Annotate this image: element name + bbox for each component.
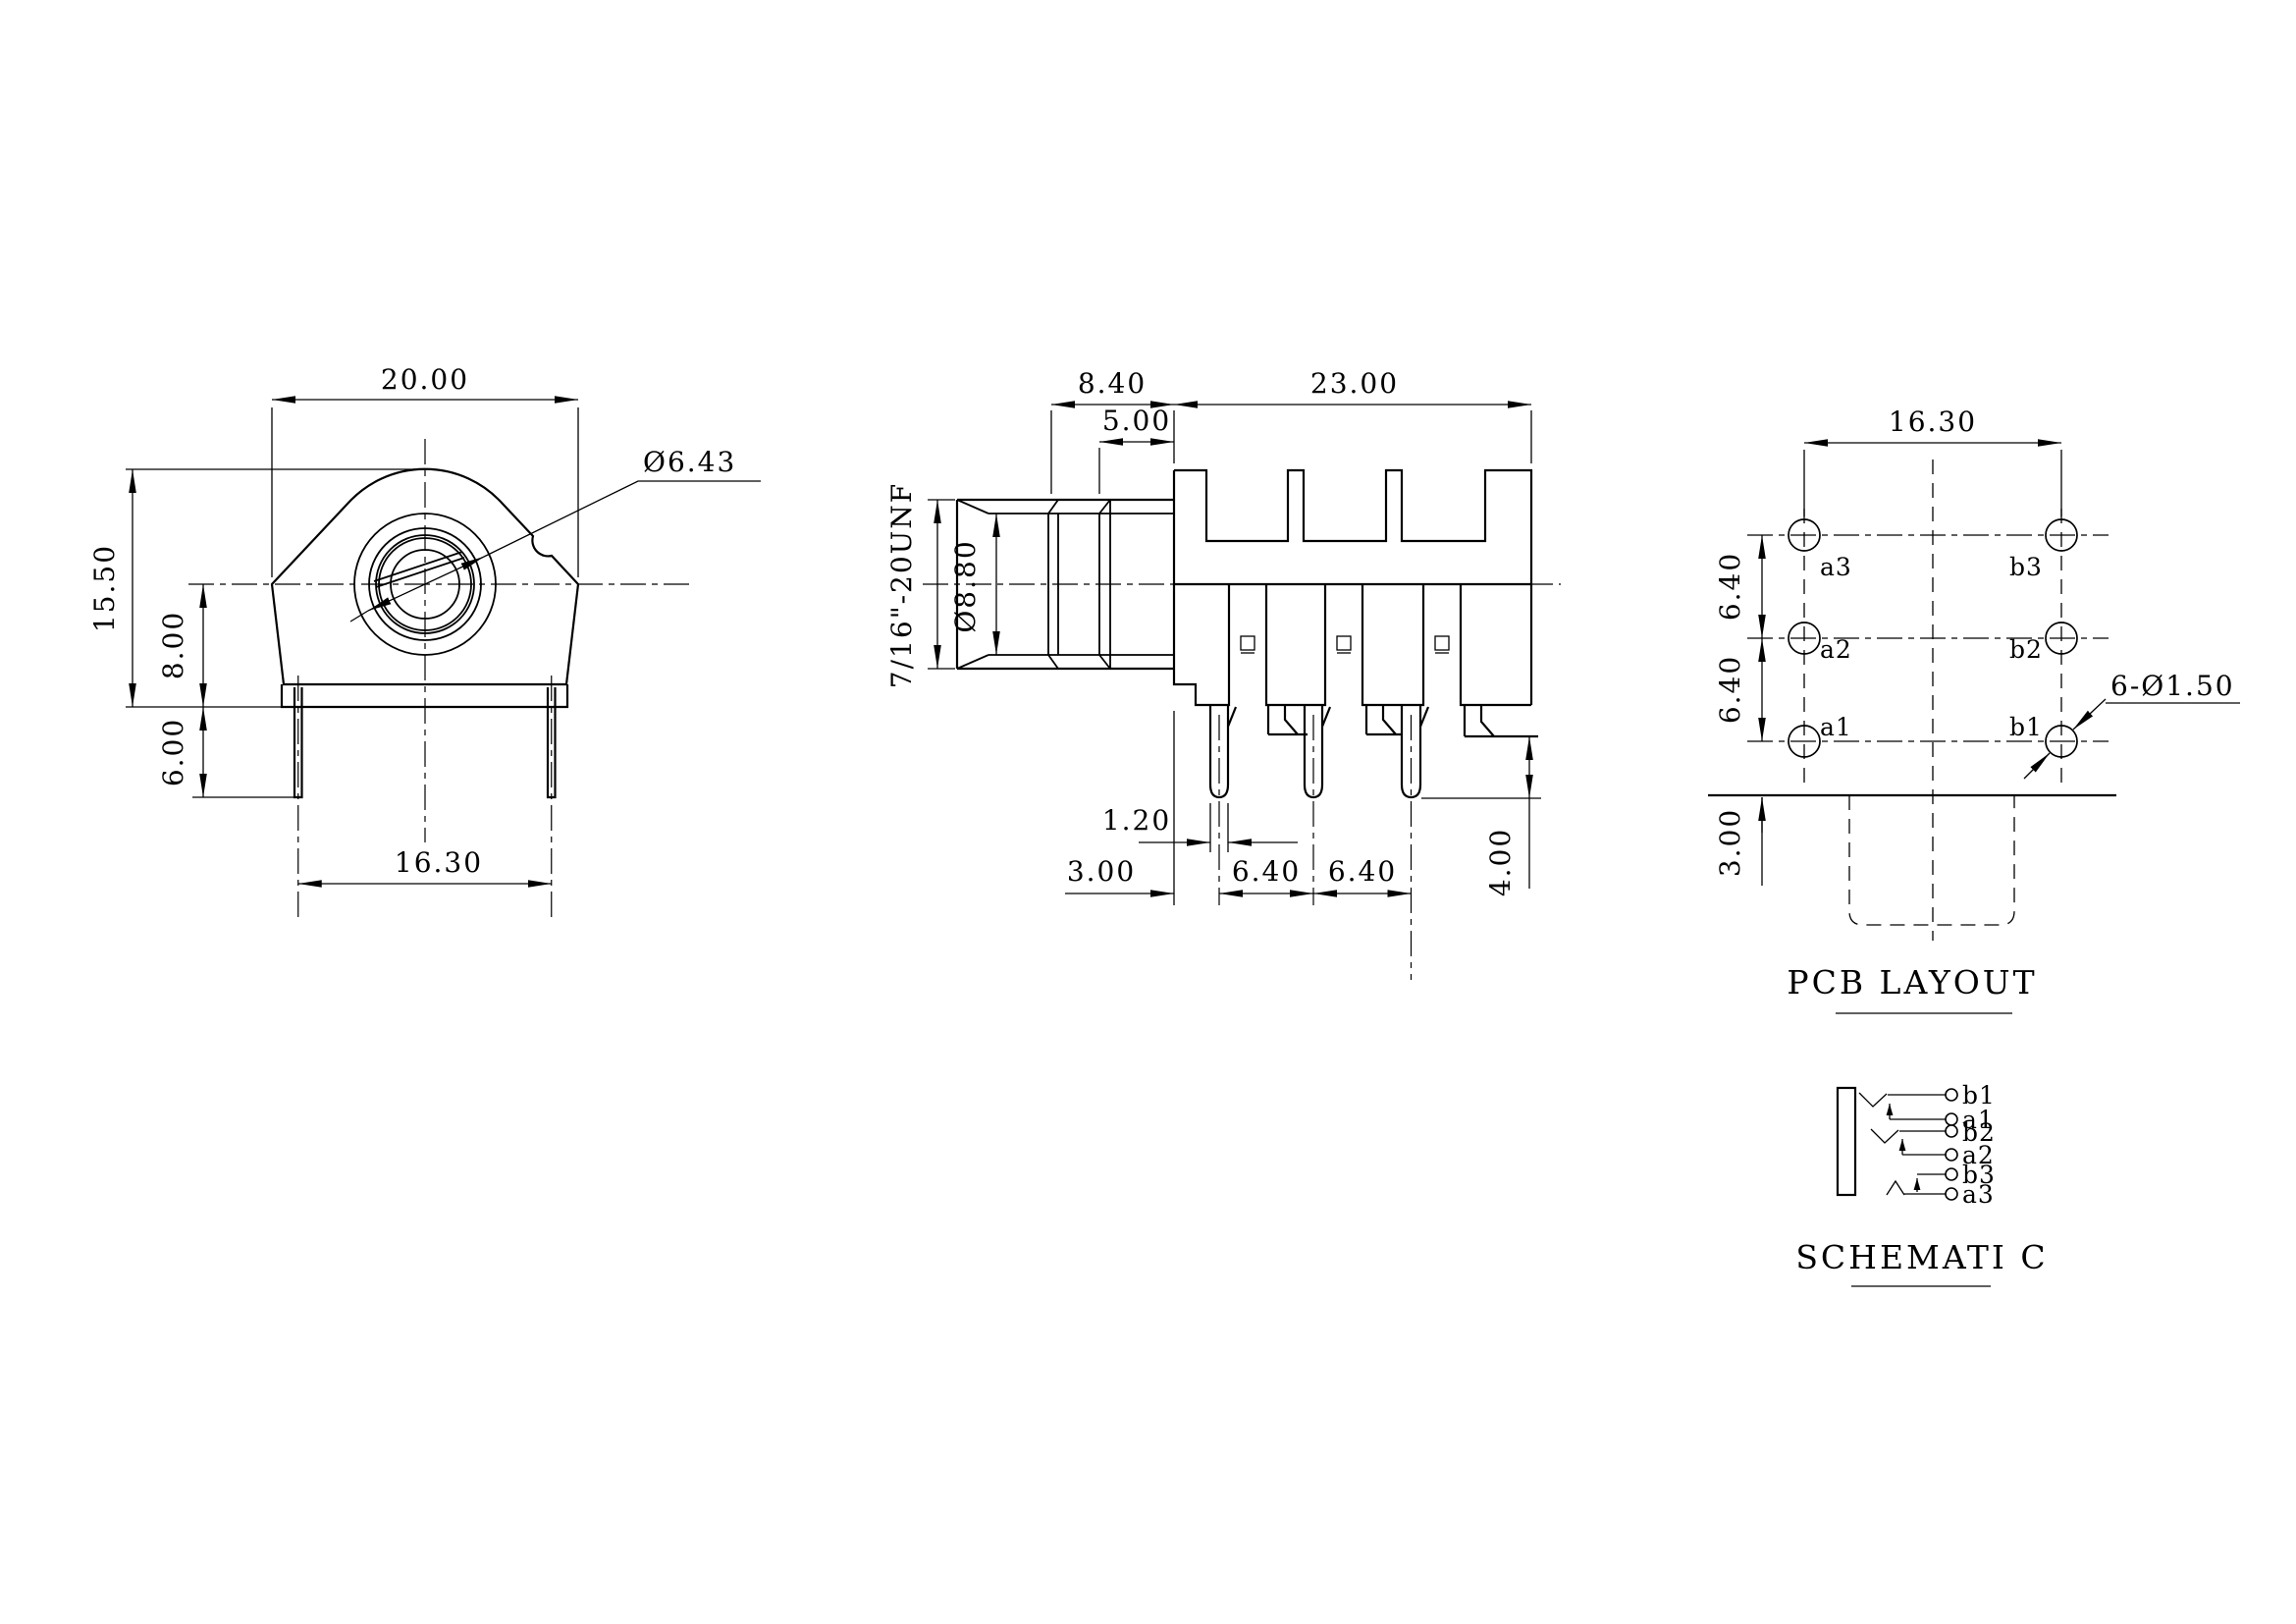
pcb-layout-title: PCB LAYOUT xyxy=(1787,963,2037,1001)
dim-label-side-pin-below: 4.00 xyxy=(1484,828,1517,896)
dim-label-side-pin-width: 1.20 xyxy=(1102,804,1171,837)
pcb-jack-body-outline xyxy=(1849,795,2014,925)
dim-front-pin-length: 6.00 xyxy=(157,707,297,797)
pcb-layout-caption: PCB LAYOUT xyxy=(1787,963,2037,1013)
dim-label-front-height: 15.50 xyxy=(88,544,121,632)
dim-front-bore: Ø6.43 xyxy=(350,446,761,622)
dim-label-pcb-edge: 3.00 xyxy=(1714,808,1746,877)
dim-side-pin-width: 1.20 xyxy=(1102,803,1298,852)
dim-label-side-neck: 5.00 xyxy=(1102,405,1171,437)
side-windows xyxy=(1241,636,1449,653)
dim-label-side-body-length: 23.00 xyxy=(1310,367,1399,400)
dim-pcb-row-pitches: 6.40 6.40 3.00 xyxy=(1714,535,1762,886)
terminal-label-a3: a3 xyxy=(1962,1180,1995,1209)
pcb-layout-view: a3 b3 a2 b2 a1 b1 16.30 6.40 6.40 3.00 xyxy=(1708,406,2240,1013)
dim-label-side-thread-length: 8.40 xyxy=(1078,367,1147,400)
dim-front-center-height: 8.00 xyxy=(157,584,203,707)
dim-label-side-bushing-bore: Ø8.80 xyxy=(949,539,982,632)
pad-label-b1: b1 xyxy=(2009,713,2043,741)
side-body-outline xyxy=(1174,470,1531,705)
pad-label-a3: a3 xyxy=(1820,553,1852,581)
schematic-jack-barrel xyxy=(1838,1088,1855,1195)
engineering-drawing-canvas: 20.00 15.50 8.00 6.00 16.30 Ø6.43 xyxy=(0,0,2296,1624)
side-contact-blocks xyxy=(1266,584,1531,705)
dim-label-side-pitch-1: 6.40 xyxy=(1232,855,1301,888)
schematic-title: SCHEMATI C xyxy=(1795,1238,2048,1276)
side-view: 8.40 23.00 5.00 7/16"-20UNF Ø8.80 1.2 xyxy=(885,367,1561,980)
dim-label-pcb-pitch-1: 6.40 xyxy=(1714,552,1746,621)
dim-pcb-holes-note: 6-Ø1.50 xyxy=(2024,670,2240,779)
dim-side-neck: 5.00 xyxy=(1099,405,1174,494)
pad-label-b2: b2 xyxy=(2009,635,2043,664)
dim-side-thread-spec: 7/16"-20UNF xyxy=(885,482,955,688)
drawing-sheet: 20.00 15.50 8.00 6.00 16.30 Ø6.43 xyxy=(0,0,2296,1624)
dim-front-height: 15.50 xyxy=(88,469,425,707)
front-view: 20.00 15.50 8.00 6.00 16.30 Ø6.43 xyxy=(88,363,761,921)
dim-label-front-width: 20.00 xyxy=(381,363,469,396)
dim-front-pin-span: 16.30 xyxy=(298,846,552,884)
pad-label-b3: b3 xyxy=(2009,553,2043,581)
dim-label-side-pitch-2: 6.40 xyxy=(1328,855,1397,888)
dim-side-pin-below: 4.00 xyxy=(1421,736,1541,896)
dim-label-pcb-pitch-2: 6.40 xyxy=(1714,655,1746,724)
schematic-terminals: b1 a1 b2 a2 b3 a3 xyxy=(1946,1081,1996,1209)
schematic-caption: SCHEMATI C xyxy=(1795,1238,2048,1286)
dim-label-pcb-holes-note: 6-Ø1.50 xyxy=(2110,670,2235,702)
pad-label-a1: a1 xyxy=(1820,713,1852,741)
dim-label-side-face-to-pin: 3.00 xyxy=(1067,855,1136,888)
schematic-view: b1 a1 b2 a2 b3 a3 SCHEMATI C xyxy=(1795,1081,2048,1286)
dim-label-pcb-col-span: 16.30 xyxy=(1889,406,1977,438)
dim-label-front-center-height: 8.00 xyxy=(157,611,189,679)
schematic-wiring xyxy=(1859,1093,1946,1195)
dim-label-front-pin-length: 6.00 xyxy=(157,718,189,786)
dim-label-front-pin-span: 16.30 xyxy=(395,846,483,879)
dim-side-body-length: 23.00 xyxy=(1174,367,1531,405)
pcb-pad-labels: a3 b3 a2 b2 a1 b1 xyxy=(1820,553,2043,741)
dim-label-side-thread-spec: 7/16"-20UNF xyxy=(885,482,918,688)
pad-label-a2: a2 xyxy=(1820,635,1852,664)
dim-label-front-bore: Ø6.43 xyxy=(643,446,736,478)
